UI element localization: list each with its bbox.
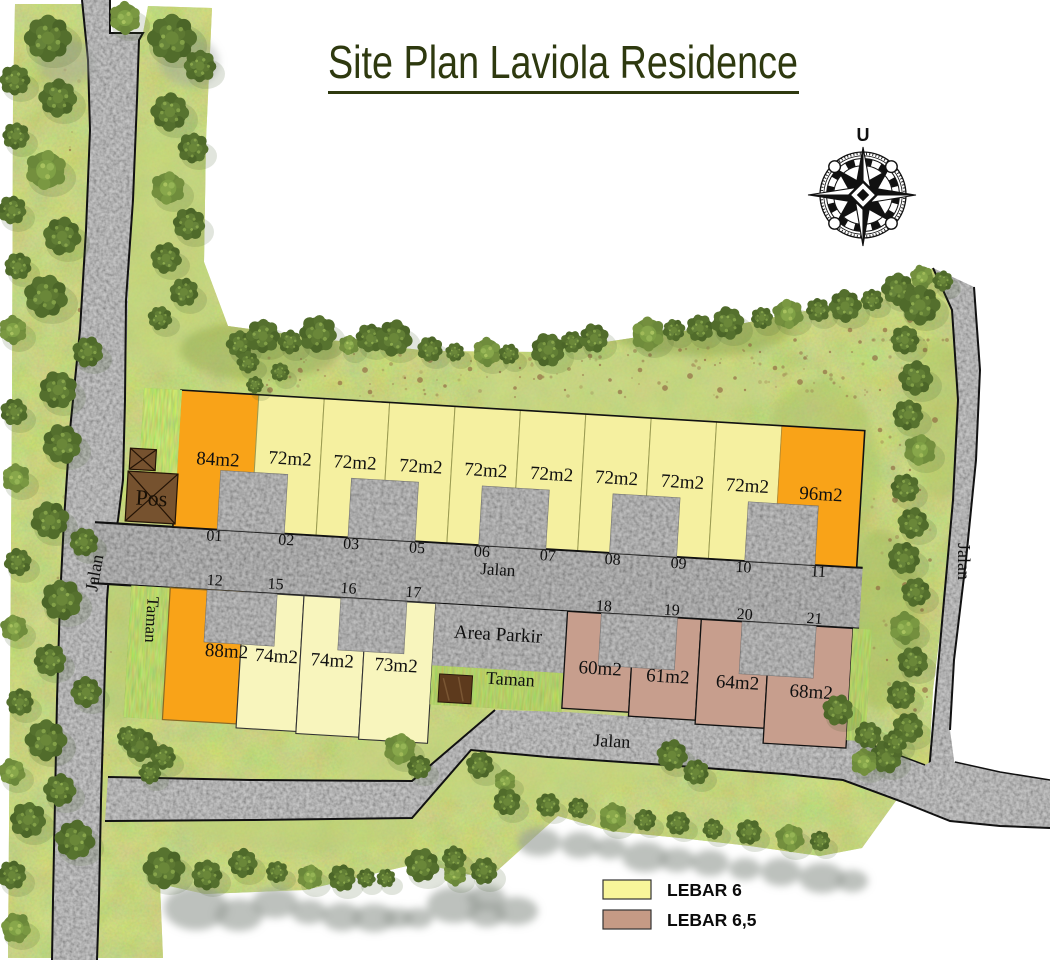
svg-text:73m2: 73m2 [374, 654, 418, 678]
svg-text:96m2: 96m2 [799, 483, 843, 507]
svg-text:88m2: 88m2 [204, 640, 248, 664]
svg-text:Pos: Pos [135, 485, 168, 512]
svg-text:84m2: 84m2 [196, 448, 240, 472]
svg-text:72m2: 72m2 [660, 471, 704, 495]
svg-text:12: 12 [206, 572, 223, 590]
svg-text:15: 15 [267, 576, 284, 594]
svg-text:68m2: 68m2 [789, 681, 833, 705]
svg-text:18: 18 [595, 598, 612, 616]
svg-text:Jalan: Jalan [593, 730, 631, 752]
svg-text:74m2: 74m2 [254, 645, 298, 669]
svg-text:09: 09 [670, 555, 687, 573]
svg-text:05: 05 [409, 539, 426, 557]
svg-text:21: 21 [806, 610, 823, 628]
svg-text:01: 01 [206, 527, 223, 545]
svg-text:72m2: 72m2 [268, 447, 312, 471]
svg-text:10: 10 [735, 559, 752, 577]
svg-text:Jalan: Jalan [480, 559, 516, 580]
svg-text:72m2: 72m2 [594, 467, 638, 491]
svg-text:Taman: Taman [141, 596, 163, 644]
svg-text:LEBAR 6,5: LEBAR 6,5 [667, 910, 757, 930]
svg-text:74m2: 74m2 [310, 649, 354, 673]
svg-text:07: 07 [539, 547, 556, 565]
svg-text:16: 16 [340, 580, 357, 598]
svg-text:03: 03 [343, 535, 360, 553]
svg-text:72m2: 72m2 [333, 451, 377, 475]
svg-text:U: U [857, 125, 870, 145]
svg-text:72m2: 72m2 [529, 463, 573, 487]
svg-text:72m2: 72m2 [399, 455, 443, 479]
svg-text:Jalan: Jalan [954, 543, 974, 580]
svg-text:11: 11 [810, 563, 826, 581]
svg-text:17: 17 [405, 584, 422, 602]
svg-text:Taman: Taman [486, 668, 536, 691]
svg-text:72m2: 72m2 [464, 459, 508, 483]
svg-text:60m2: 60m2 [578, 657, 622, 681]
svg-text:72m2: 72m2 [725, 475, 769, 499]
svg-text:Site Plan Laviola Residence: Site Plan Laviola Residence [328, 36, 798, 88]
svg-text:LEBAR 6: LEBAR 6 [667, 880, 742, 900]
svg-text:02: 02 [278, 532, 295, 550]
svg-text:08: 08 [604, 551, 621, 569]
svg-text:61m2: 61m2 [646, 665, 690, 689]
svg-text:20: 20 [736, 606, 753, 624]
svg-text:64m2: 64m2 [715, 671, 759, 695]
svg-text:19: 19 [663, 602, 680, 620]
